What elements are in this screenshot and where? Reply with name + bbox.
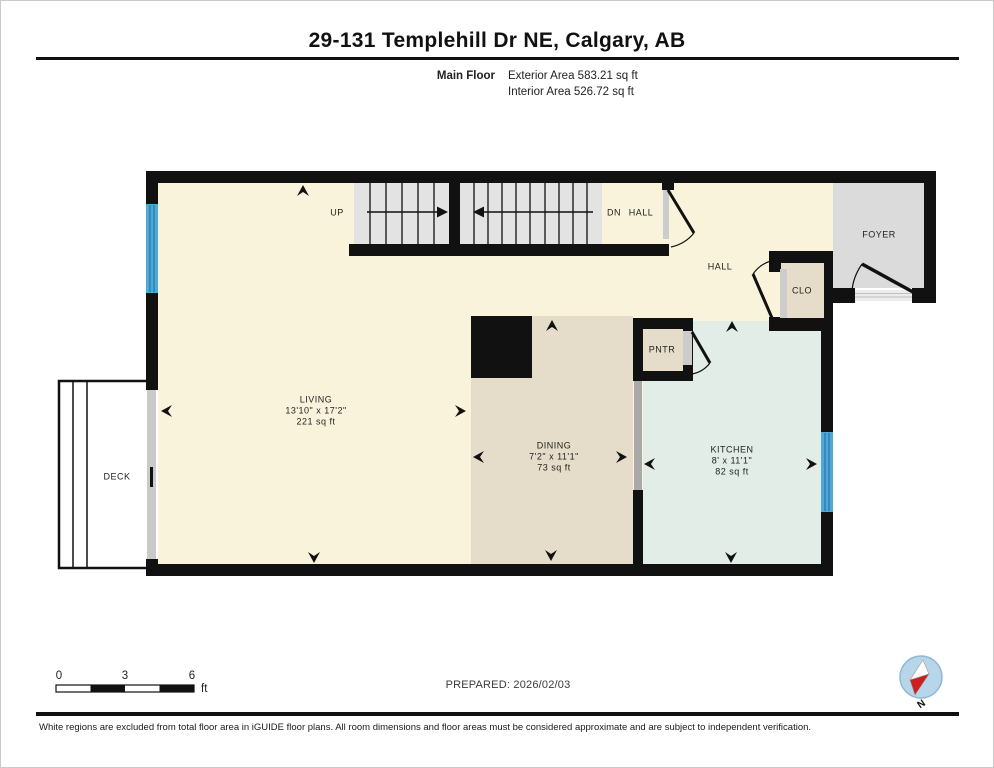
wall-left-mid [146,293,158,390]
room-name: LIVING [285,395,346,406]
room-area: 73 sq ft [529,463,579,474]
scale-bar [56,685,194,692]
living-room-label: LIVING 13'10" x 17'2" 221 sq ft [285,395,346,428]
patio-sliding-door [147,390,156,559]
staircase-down [460,180,602,244]
hall-upper-label: HALL [629,208,654,219]
scale-zero-label: 0 [56,670,62,682]
room-name: DINING [529,441,579,452]
wall-stair-bottom [349,244,669,256]
dining-room-label: DINING 7'2" x 11'1" 73 sq ft [529,441,579,474]
prepared-date: PREPARED: 2026/02/03 [446,679,571,691]
scale-unit-label: ft [201,683,207,695]
half-wall [634,378,642,490]
hall-lower-label: HALL [708,262,733,273]
floor-plan-page: 29-131 Templehill Dr NE, Calgary, AB Mai… [0,0,994,768]
wall-right-lower [821,512,833,564]
foyer-label: FOYER [862,230,896,241]
wall-bottom [146,564,833,576]
staircase-up [354,180,449,244]
scale-six-label: 6 [189,670,195,682]
wall-top [146,171,936,183]
window-kitchen [821,432,833,512]
window-living [146,204,158,293]
closet-label: CLO [792,286,812,297]
wall-stair-door-corner [662,179,674,190]
stairs-up-label: UP [330,208,344,219]
scale-three-label: 3 [122,670,128,682]
deck-label: DECK [103,472,130,483]
wall-left-upper [146,171,158,204]
disclaimer-text: White regions are excluded from total fl… [39,722,969,733]
room-name: KITCHEN [710,445,753,456]
footer-divider [36,712,959,716]
stair-divider-wall [449,180,460,244]
room-area: 82 sq ft [710,467,753,478]
room-dims: 7'2" x 11'1" [529,452,579,463]
pantry-label: PNTR [649,345,676,356]
floor-plan-drawing [1,1,993,767]
wall-foyer-bottom-right [912,288,936,303]
dining-kitchen-wall [633,490,643,564]
stairs-dn-label: DN [607,208,621,219]
room-dims: 8' x 11'1" [710,456,753,467]
structural-chase [471,316,532,378]
compass-icon [900,656,942,698]
room-dims: 13'10" x 17'2" [285,406,346,417]
wall-foyer-right [924,171,936,303]
room-area: 221 sq ft [285,417,346,428]
kitchen-label: KITCHEN 8' x 11'1" 82 sq ft [710,445,753,478]
